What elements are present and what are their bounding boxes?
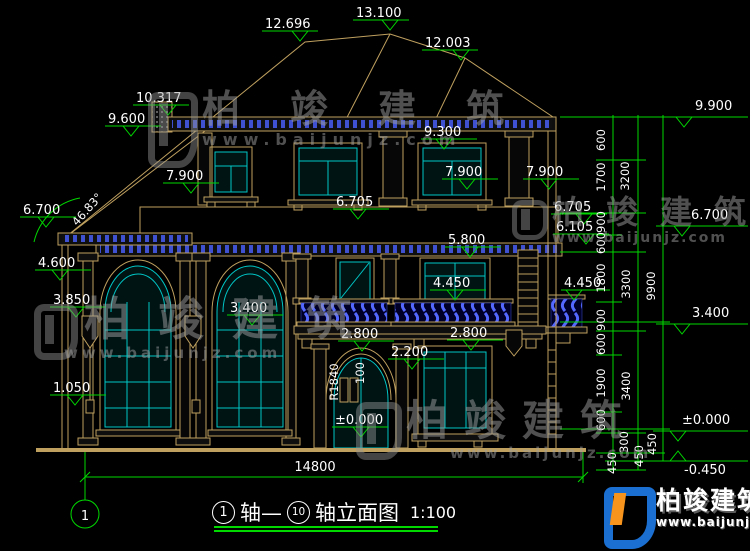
ground-line [36, 448, 586, 452]
chain-dimension-value: 450 [605, 452, 619, 474]
chain-dimension-value: 1700 [594, 162, 608, 191]
elevation-value: 1.050 [53, 381, 90, 396]
title-axis-end-bubble: 10 [287, 501, 310, 524]
elevation-marker: 13.100 [353, 6, 409, 30]
arch-radius-label: R1840 [327, 363, 341, 400]
title-underline [214, 530, 438, 532]
chain-dimension-value: 600 [594, 129, 608, 151]
elevation-value: 6.700 [691, 208, 728, 223]
chain-dimension-value: 900 [594, 211, 608, 233]
elevation-value: 12.003 [425, 36, 471, 51]
chain-dimension-value: 600 [594, 409, 608, 431]
chain-dimension-value: 450 [645, 433, 659, 455]
chain-dimension-value: 900 [594, 309, 608, 331]
chain-dimension-value: 3400 [619, 371, 633, 400]
elevation-marker: 3.400 [656, 306, 748, 334]
elevation-value: 7.900 [526, 165, 563, 180]
column [78, 253, 98, 445]
elevation-value: 13.100 [356, 6, 402, 21]
elevation-marker: 3.850 [50, 293, 106, 317]
lamp-ornament [86, 400, 94, 413]
elevation-value: ±0.000 [682, 413, 730, 428]
title-joiner: 轴— [240, 497, 282, 527]
elevation-value: 5.800 [448, 233, 485, 248]
pent-roof-strip [58, 207, 562, 256]
lamp-ornament [192, 400, 200, 413]
left-wing [62, 245, 300, 448]
elevation-value: 12.696 [265, 17, 311, 32]
elevation-marker: 12.003 [422, 36, 478, 60]
elevation-drawing: 14800 R1840 100 46.83° 1 12.69613.10012.… [0, 0, 750, 551]
chain-dimension-value: 3300 [619, 269, 633, 298]
door-leaf [340, 378, 348, 402]
company-logo: 柏竣建筑 www.baijunjz.com [598, 477, 750, 539]
elevation-value: 9.300 [424, 125, 461, 140]
chain-dimension-value: 9900 [644, 271, 658, 300]
elevation-value: 6.705 [554, 200, 591, 215]
elevation-value: 3.850 [53, 293, 90, 308]
company-logo-icon [598, 477, 650, 539]
total-width-dimension: 14800 [294, 460, 335, 475]
elevation-value: 6.105 [556, 220, 593, 235]
drawing-title: 1 轴— 10 轴立面图 1:100 [212, 497, 456, 527]
elevation-value: 4.600 [38, 256, 75, 271]
chain-dimension-value: 600 [594, 333, 608, 355]
title-axis-start-bubble: 1 [212, 501, 235, 524]
column [176, 253, 210, 445]
chain-dimension-value: 1900 [594, 368, 608, 397]
elevation-marker: 6.700 [20, 203, 76, 227]
elevation-value: 9.900 [695, 99, 732, 114]
second-floor-center [293, 250, 587, 348]
axis-bubble-number: 1 [81, 509, 89, 524]
elevation-value: 3.400 [230, 301, 267, 316]
elevation-value: 6.705 [336, 195, 373, 210]
first-floor-window [412, 346, 498, 447]
elevation-marker: 7.900 [523, 165, 579, 189]
arched-window [208, 260, 292, 436]
elevation-value: 2.800 [450, 326, 487, 341]
elevation-marker: 12.696 [262, 17, 318, 41]
company-logo-url: www.baijunjz.com [656, 515, 750, 529]
company-logo-brand: 柏竣建筑 [656, 487, 750, 515]
chain-dimension-value: 450 [632, 445, 646, 467]
elevation-marker: -0.450 [653, 451, 748, 478]
elevation-value: 10.317 [136, 91, 182, 106]
elevation-marker: 1.050 [50, 381, 106, 405]
elevation-value: 7.900 [445, 165, 482, 180]
elevation-value: 7.900 [166, 169, 203, 184]
elevation-value: 2.800 [341, 327, 378, 342]
title-underline [214, 526, 438, 528]
elevation-value: 3.400 [692, 306, 729, 321]
chain-dimension-value: 1800 [594, 263, 608, 292]
elevation-marker: ±0.000 [653, 413, 748, 441]
elevation-value: -0.450 [684, 463, 726, 478]
arched-window [96, 260, 180, 436]
corner-balustrade [546, 295, 587, 343]
title-name: 轴立面图 [315, 497, 399, 527]
elevation-value: 2.200 [391, 345, 428, 360]
elevation-value: 4.450 [433, 276, 470, 291]
elevation-value: 6.700 [23, 203, 60, 218]
chain-dimension-value: 600 [594, 232, 608, 254]
title-scale: 1:100 [410, 503, 456, 522]
elevation-marker: 6.700 [656, 208, 748, 236]
elevation-value: ±0.000 [335, 413, 383, 428]
shield-ornament [506, 330, 522, 356]
elevation-value: 9.600 [108, 112, 145, 127]
main-cornice [168, 117, 556, 131]
rusticated-pilaster [518, 250, 538, 330]
cad-drawing-canvas: 14800 R1840 100 46.83° 1 12.69613.10012.… [0, 0, 750, 551]
balcony-door-window [336, 258, 374, 302]
door-width-label: 100 [353, 362, 367, 384]
balcony-balustrade [297, 299, 515, 326]
chain-dimension-value: 3200 [618, 161, 632, 190]
elevation-marker: 9.900 [658, 99, 748, 127]
chain-dimension-value: 300 [617, 431, 631, 453]
